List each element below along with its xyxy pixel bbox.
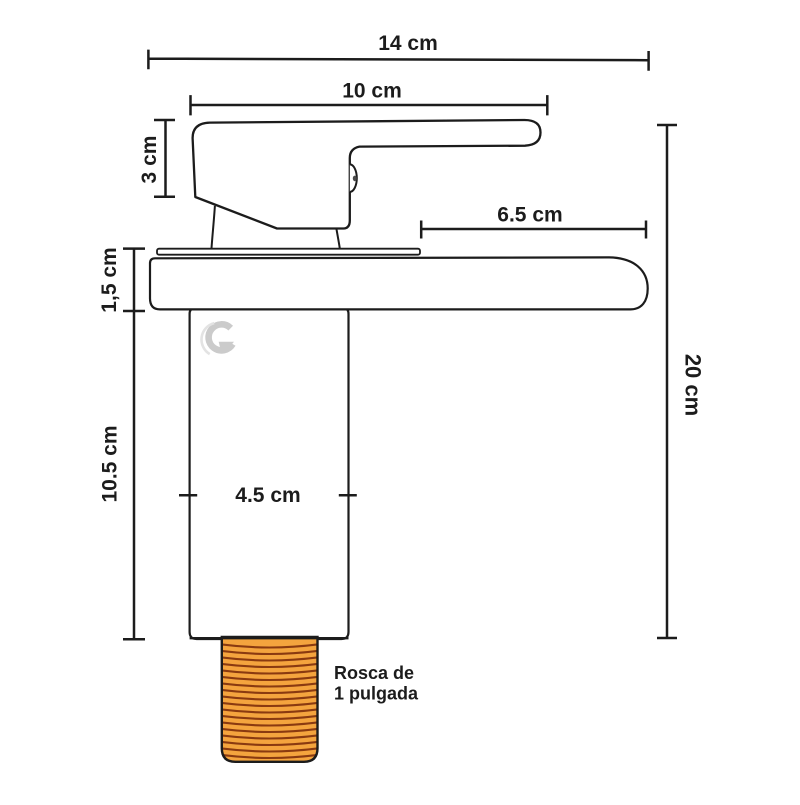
- svg-text:4.5 cm: 4.5 cm: [235, 484, 300, 507]
- svg-text:6.5 cm: 6.5 cm: [497, 204, 562, 227]
- svg-text:20 cm: 20 cm: [681, 354, 706, 416]
- svg-text:10 cm: 10 cm: [342, 80, 402, 103]
- svg-text:14 cm: 14 cm: [378, 32, 438, 55]
- svg-text:Rosca de: Rosca de: [334, 663, 414, 683]
- svg-text:1,5 cm: 1,5 cm: [98, 247, 121, 312]
- svg-text:10.5 cm: 10.5 cm: [99, 425, 122, 502]
- svg-text:1 pulgada: 1 pulgada: [334, 684, 419, 704]
- svg-text:3 cm: 3 cm: [138, 136, 161, 184]
